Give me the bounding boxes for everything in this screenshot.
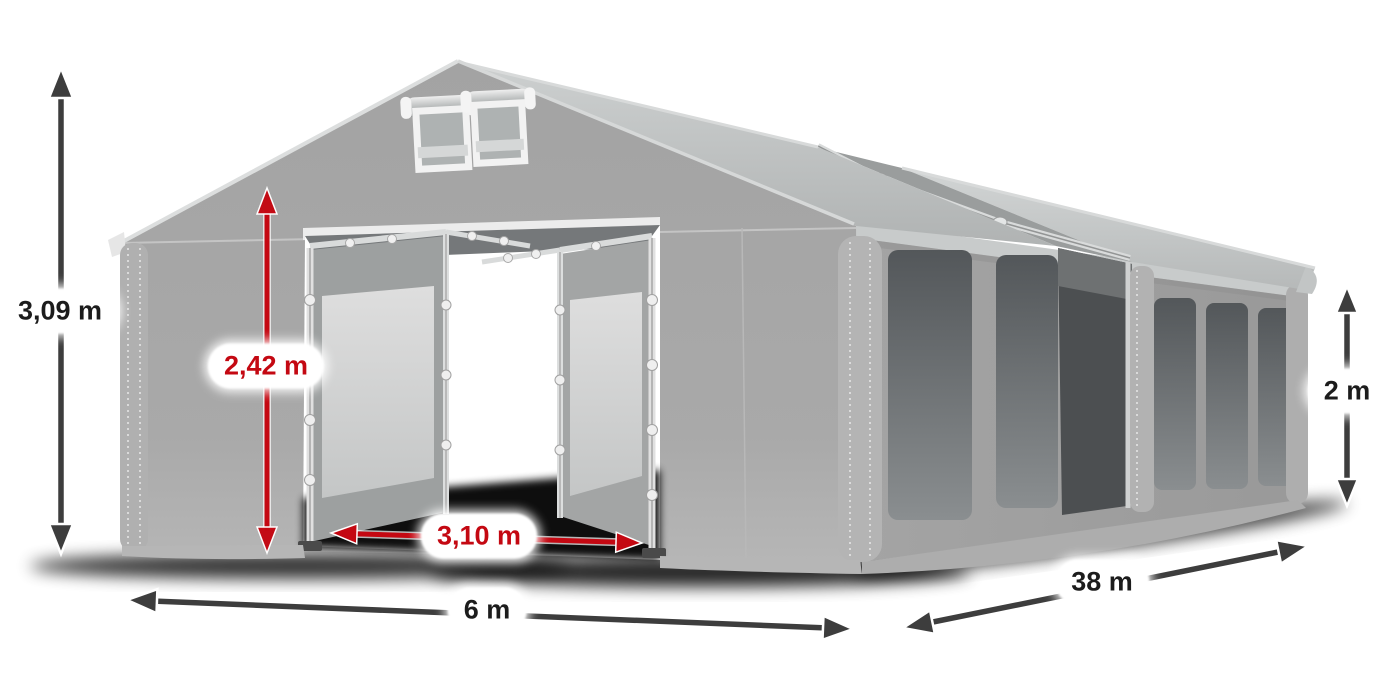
rear-corner-pillar [1286, 284, 1308, 504]
side-window [1154, 298, 1196, 490]
door-window [570, 292, 642, 496]
front-left-pillar [120, 243, 148, 551]
tent-dimension-diagram: 3,09 m 2,42 m 3,10 m 6 m 38 m 2 m [0, 0, 1400, 700]
entrance-width-label: 3,10 m [423, 515, 535, 556]
tent-illustration [0, 0, 1400, 700]
total-height-label: 3,09 m [4, 290, 116, 331]
front-right-pillar [838, 236, 882, 562]
length-label: 38 m [1057, 561, 1147, 602]
module-corner-pillar [1130, 266, 1154, 512]
side-height-label: 2 m [1310, 370, 1385, 411]
vent-mesh [474, 103, 525, 163]
entrance-height-label: 2,42 m [210, 345, 322, 386]
width-label: 6 m [450, 589, 525, 630]
vent-mesh [416, 109, 469, 170]
side-window [996, 255, 1058, 508]
door-window [322, 286, 434, 498]
side-window [888, 250, 972, 520]
entrance [298, 217, 666, 560]
side-window [1206, 303, 1248, 489]
front-skirt [122, 545, 305, 559]
